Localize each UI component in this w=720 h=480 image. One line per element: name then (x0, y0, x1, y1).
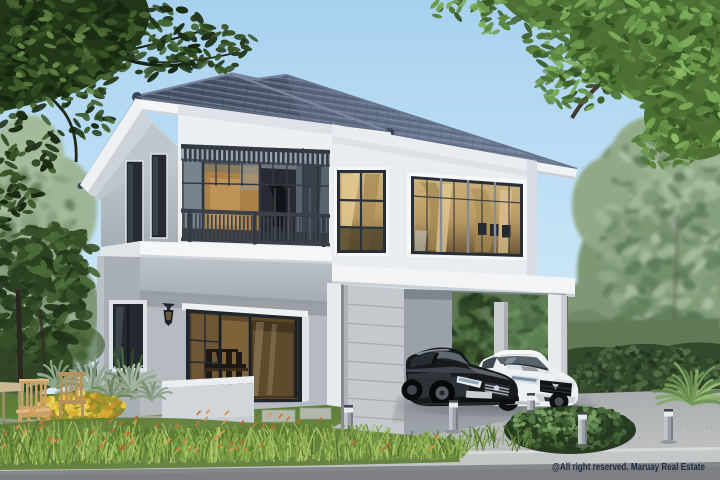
svg-text:@All right reserved. Maruay Re: @All right reserved. Maruay Real Estate (552, 461, 705, 473)
